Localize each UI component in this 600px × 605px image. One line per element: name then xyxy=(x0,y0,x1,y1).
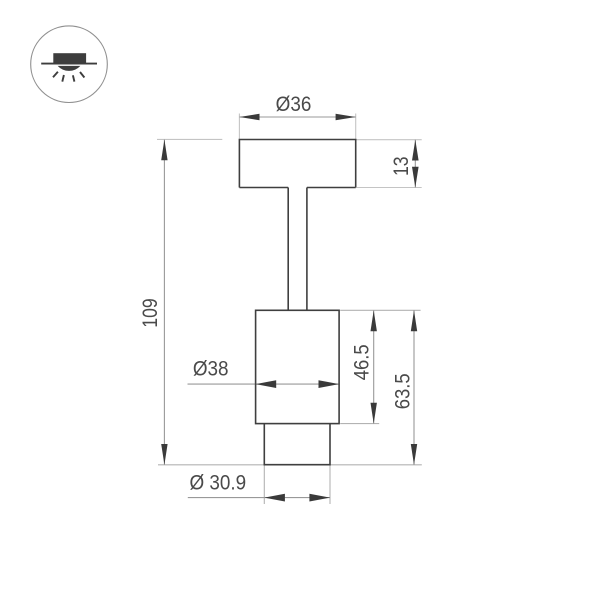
svg-text:Ø38: Ø38 xyxy=(193,358,229,381)
svg-text:109: 109 xyxy=(139,298,163,327)
svg-text:46.5: 46.5 xyxy=(350,344,373,380)
svg-text:63.5: 63.5 xyxy=(391,373,414,409)
svg-text:Ø 30.9: Ø 30.9 xyxy=(189,472,246,495)
svg-text:Ø36: Ø36 xyxy=(276,93,312,116)
svg-text:13: 13 xyxy=(390,156,414,176)
